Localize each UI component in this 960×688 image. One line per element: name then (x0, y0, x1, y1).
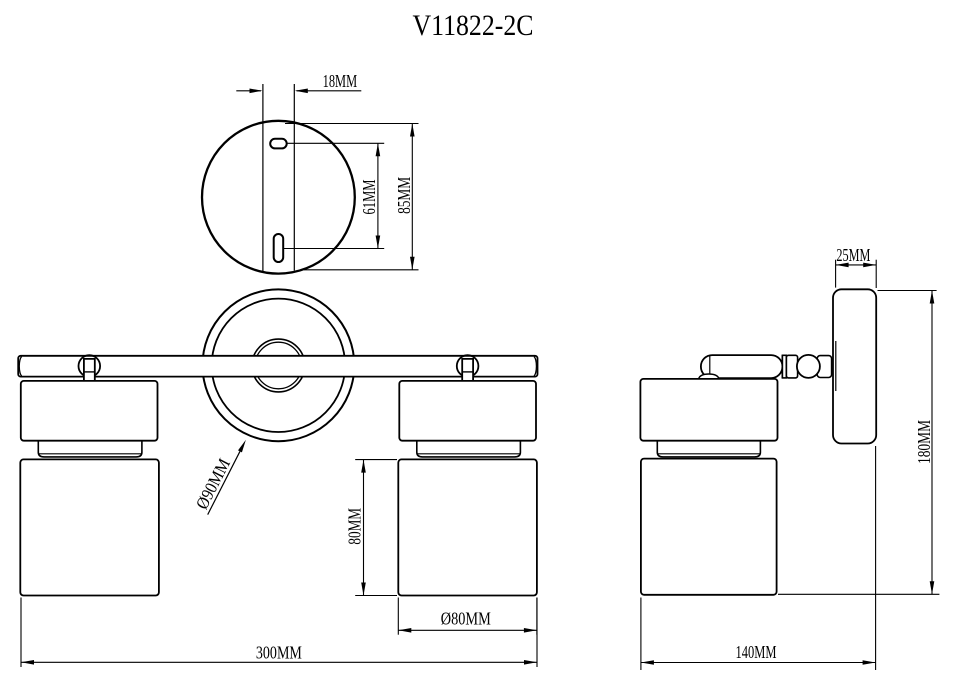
svg-text:V11822-2C: V11822-2C (413, 9, 534, 42)
svg-text:18MM: 18MM (323, 71, 358, 91)
svg-text:140MM: 140MM (736, 642, 777, 662)
svg-text:180MM: 180MM (914, 420, 934, 464)
svg-text:61MM: 61MM (359, 179, 379, 214)
svg-text:Ø80MM: Ø80MM (441, 609, 491, 629)
svg-text:Ø90MM: Ø90MM (192, 455, 235, 513)
svg-text:300MM: 300MM (256, 642, 302, 662)
svg-text:25MM: 25MM (836, 245, 870, 265)
svg-text:85MM: 85MM (394, 177, 414, 214)
svg-text:80MM: 80MM (345, 508, 365, 545)
